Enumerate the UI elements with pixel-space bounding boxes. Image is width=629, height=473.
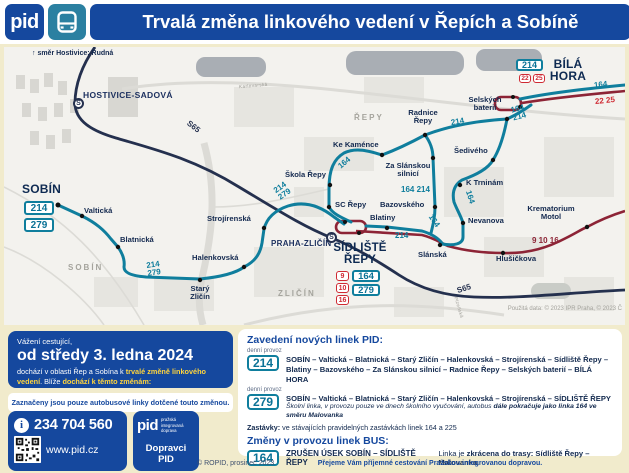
map-stop-radnice-repy: Radnice Řepy — [398, 109, 448, 125]
line-badge-16: 16 — [336, 295, 349, 305]
map-stop-strojirenska: Strojírenská — [207, 215, 251, 223]
phone-row: i 234 704 560 — [14, 417, 121, 433]
line-badge-214: 214 — [516, 59, 543, 71]
contact-box: i 234 704 560 www.pid.cz — [8, 411, 127, 471]
map-stop-k-trninam: K Trninám — [466, 179, 503, 187]
terminal-sobin: SOBÍN — [22, 183, 61, 195]
line-279-note: Školní linka, v provozu pouze ve dnech š… — [286, 403, 613, 421]
rail-label-s65: S65 — [185, 120, 201, 135]
line-badge-279: 279 — [352, 284, 380, 296]
suburb-blocks — [16, 73, 138, 149]
stops-note: Zastávky: ve stávajících pravidelných za… — [247, 423, 613, 432]
notice-text-1: dochází v oblasti Řep a Sobína k — [17, 367, 126, 376]
notice-highlight-2: dochází k těmto změnám: — [62, 377, 151, 386]
line-214-route: SOBÍN – Valtická – Blatnická – Starý Zli… — [286, 355, 613, 385]
qr-code — [14, 436, 41, 463]
route-label-164: 164 — [464, 190, 476, 205]
pid-logo: pid — [5, 4, 44, 40]
route-label-214: 214 — [395, 232, 408, 240]
bus-icon — [48, 4, 86, 40]
line-279-row: 279 SOBÍN – Valtická – Blatnická – Starý… — [247, 394, 613, 422]
direction-note: ↑ směr Hostivice; Rudná — [32, 50, 113, 57]
notice-greeting: Vážení cestující, — [17, 337, 224, 346]
heading-bus-changes: Změny v provozu linek BUS: — [247, 435, 613, 447]
line-279-note-regular: Školní linka, v provozu pouze ve dnech š… — [286, 403, 493, 410]
heading-new-lines: Zavedení nových linek PID: — [247, 334, 613, 346]
stop-dots — [56, 95, 590, 282]
operators-box: pid pražská integrovaná doprava Dopravci… — [133, 411, 199, 471]
street-label-karlovarska: Karlovarská — [239, 82, 268, 89]
area-label-repy: ŘEPY — [354, 113, 384, 122]
rail-station-icon: S — [73, 98, 84, 109]
map-stop-ke-kamence: Ke Kaménce — [333, 141, 379, 149]
pid-logo-text: pid — [10, 11, 39, 34]
station-hostivice-sadova: HOSTIVICE-SADOVÁ — [83, 90, 173, 100]
map-stop-blatiny: Blatiny — [370, 214, 395, 222]
terminal-bila-hora: BÍLÁ HORA — [545, 58, 591, 82]
web-row: www.pid.cz — [14, 436, 121, 463]
route-label-214-279: 214 279 — [146, 260, 162, 278]
street-label-plzenska: Plzeňská — [453, 296, 464, 318]
service-note: denní provoz — [247, 387, 613, 393]
legend-note: Zaznačeny jsou pouze autobusové linky do… — [8, 393, 233, 412]
route-label-214: 214 — [450, 117, 465, 128]
pid-logo-subtitle: pražská integrovaná doprava — [161, 417, 195, 433]
line-badge-22: 22 — [519, 74, 531, 83]
notice-paragraph: dochází v oblasti Řep a Sobína k trvalé … — [17, 367, 224, 386]
terrain-blobs — [196, 49, 571, 299]
route-label-9-10-16: 9 10 16 — [532, 237, 559, 245]
map-stop-bazovskeho: Bazovského — [380, 201, 424, 209]
pid-logo-small: pid — [137, 417, 158, 434]
map-stop-hlusickova: Hlušičkova — [496, 255, 536, 263]
railway-s65-path — [75, 47, 625, 297]
changes-panel: Zavedení nových linek PID: denní provoz … — [238, 329, 622, 456]
rail-station-icon: S — [326, 232, 337, 243]
map-stop-blatnicka: Blatnická — [120, 236, 154, 244]
info-icon: i — [14, 418, 29, 433]
map-stop-sc-repy: SC Řepy — [335, 201, 366, 209]
stops-note-label: Zastávky: — [247, 423, 280, 432]
route-label-164-214: 164 214 — [401, 186, 430, 194]
roads — [4, 83, 625, 325]
notice-date: od středy 3. ledna 2024 — [17, 347, 224, 365]
map-stop-za-slanskou: Za Slánskou silnicí — [382, 162, 434, 178]
map-stop-sediveho: Šedivého — [454, 147, 488, 155]
poster: pid Trvalá změna linkového vedení v Řepí… — [0, 0, 629, 473]
line-badge-214: 214 — [24, 201, 54, 215]
poster-title-box: Trvalá změna linkového vedení v Řepích a… — [90, 4, 629, 40]
transit-map: ↑ směr Hostivice; Rudná Použitá data: © … — [4, 47, 625, 325]
tram-route-path — [336, 91, 625, 253]
website-url: www.pid.cz — [46, 444, 99, 456]
map-stop-stary-zlicin: Starý Zličín — [176, 285, 224, 301]
map-canvas — [4, 47, 625, 325]
line-badge-9: 9 — [336, 271, 349, 281]
route-label-214-279: 214 279 — [272, 181, 293, 202]
line-279-route: SOBÍN – Valtická – Blatnická – Starý Zli… — [286, 394, 613, 422]
line-badge-279: 279 — [24, 218, 54, 232]
map-stop-slanska: Slánská — [418, 251, 447, 259]
area-label-zlicin: ZLIČÍN — [278, 289, 316, 298]
route-label-164-214: 164 214 — [510, 104, 527, 124]
stops-note-text: ve stávajících pravidelných zastávkách l… — [280, 423, 457, 432]
line-badge-10: 10 — [336, 283, 349, 293]
map-stop-halenkovska: Halenkovská — [192, 254, 238, 262]
route-label-22-25: 22 25 — [595, 96, 616, 106]
terminal-sidliste-repy: SÍDLIŠTĚ ŘEPY — [331, 243, 389, 266]
map-stop-valticka: Valtická — [84, 207, 112, 215]
line-badge-164: 164 — [352, 270, 380, 282]
station-praha-zlicin: PRAHA-ZLIČÍN — [271, 239, 331, 248]
operators-label: Dopravci PID — [137, 443, 195, 465]
line-279-route-text: SOBÍN – Valtická – Blatnická – Starý Zli… — [286, 394, 611, 403]
operators-logo-row: pid pražská integrovaná doprava — [137, 417, 195, 434]
map-stop-krematorium-motol: Krematorium Motol — [520, 205, 582, 221]
area-label-sobin: SOBÍN — [68, 263, 103, 272]
bus-front-icon — [55, 10, 79, 34]
city-blocks — [94, 77, 614, 317]
map-stop-nevanova: Nevanova — [468, 217, 504, 225]
map-stop-selskych-baterii: Selských baterií — [462, 96, 508, 112]
notice-box: Vážení cestující, od středy 3. ledna 202… — [8, 331, 233, 388]
header: pid Trvalá změna linkového vedení v Řepí… — [0, 0, 629, 44]
service-note: denní provoz — [247, 348, 613, 354]
line-badge-25: 25 — [533, 74, 545, 83]
rail-label-s65: S65 — [456, 283, 472, 295]
route-label-164: 164 — [594, 80, 608, 90]
map-attribution: Použitá data: © 2023 IPR Praha, © 2023 Č — [322, 306, 622, 312]
map-stop-skola-repy: Škola Řepy — [285, 171, 326, 179]
panel-badge-279: 279 — [247, 394, 279, 410]
line-214-row: 214 SOBÍN – Valtická – Blatnická – Starý… — [247, 355, 613, 385]
notice-text-2: . Blíže — [40, 377, 62, 386]
phone-number: 234 704 560 — [34, 417, 112, 433]
line-164-info-regular: Linka je — [438, 449, 466, 458]
poster-title: Trvalá změna linkového vedení v Řepích a… — [143, 11, 579, 33]
bus-route-path — [58, 85, 625, 279]
route-label-164: 164 — [337, 156, 353, 171]
route-label-164: 164 — [426, 213, 441, 229]
footer-message: Přejeme Vám příjemné cestování Pražskou … — [238, 460, 622, 467]
panel-badge-214: 214 — [247, 355, 279, 371]
